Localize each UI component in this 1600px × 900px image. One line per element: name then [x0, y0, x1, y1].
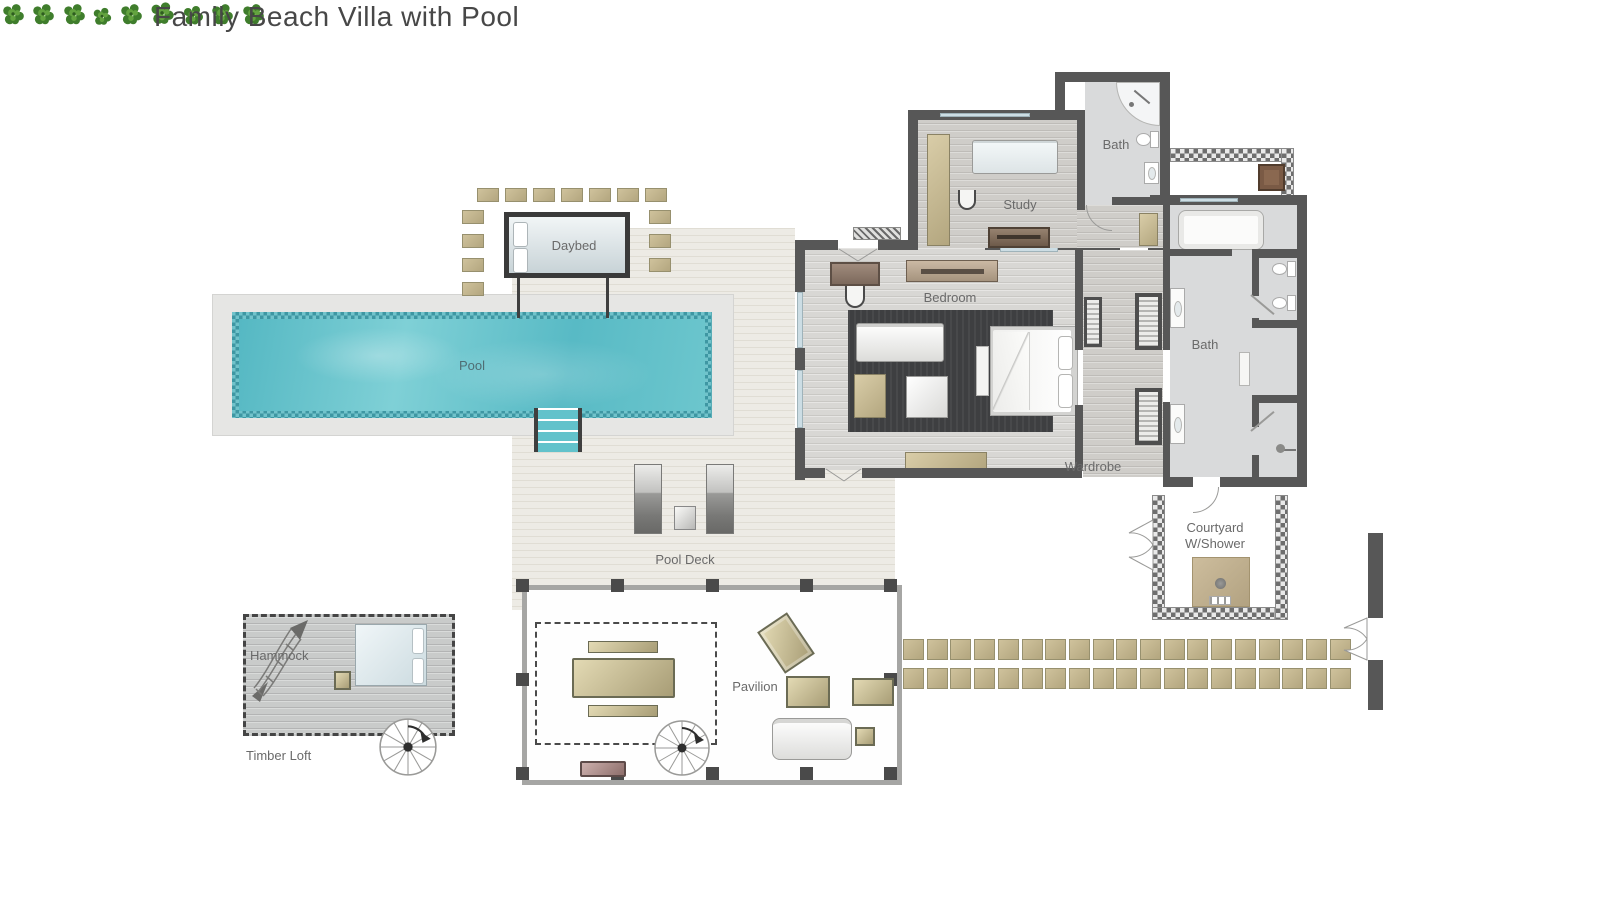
stepping-stone [1235, 668, 1256, 689]
door-swing-icon [1193, 487, 1219, 513]
planter-box [1258, 164, 1285, 191]
bath-wall [1163, 402, 1170, 477]
bedroom-glass-door [797, 292, 803, 348]
plant-icon [0, 2, 26, 28]
pavilion-sofa [772, 718, 852, 760]
stepping-stone [505, 188, 527, 202]
bidet-icon [1272, 297, 1287, 309]
study-label: Study [975, 197, 1065, 212]
stepping-stone [649, 258, 671, 272]
garden-trellis [1170, 148, 1294, 162]
pool-steps [534, 408, 582, 452]
bedroom-wall [795, 468, 825, 478]
toilet-tank [1287, 295, 1296, 311]
stepping-stone [927, 668, 948, 689]
pavilion-post [706, 579, 719, 592]
study-bath-wall [1055, 72, 1170, 82]
bed-pillow [1058, 374, 1073, 408]
stepping-stone [950, 668, 971, 689]
stepping-stone [1116, 668, 1137, 689]
courtyard-trellis [1275, 495, 1288, 620]
pavilion-post [884, 579, 897, 592]
shower-wall [1252, 455, 1259, 477]
study-wall [1077, 110, 1085, 210]
stepping-stone [1259, 668, 1280, 689]
bath-wall [1170, 249, 1232, 256]
closet [1135, 388, 1162, 445]
stepping-stone [649, 234, 671, 248]
stepping-stone [1022, 668, 1043, 689]
stepping-stone [1069, 639, 1090, 660]
stepping-stone [1282, 639, 1303, 660]
stepping-stone [533, 188, 555, 202]
stepping-stone [462, 210, 484, 224]
stepping-stone [1140, 668, 1161, 689]
plant-icon [91, 6, 113, 28]
stepping-stone [1045, 639, 1066, 660]
stepping-stone [1235, 639, 1256, 660]
stepping-stone [1211, 668, 1232, 689]
bedroom-wall [862, 468, 1082, 478]
stepping-stone [903, 639, 924, 660]
daybed-pillow [513, 222, 528, 247]
sun-lounger [634, 464, 662, 534]
dining-table [572, 658, 675, 698]
bathtub [1178, 210, 1264, 250]
stepping-stone [561, 188, 583, 202]
stepping-stone [1022, 639, 1043, 660]
courtyard-label: Courtyard [1165, 520, 1265, 535]
stepping-stone [1306, 639, 1327, 660]
bedroom-glass-door [797, 370, 803, 428]
stepping-stone [1306, 668, 1327, 689]
pavilion-post [884, 767, 897, 780]
stepping-stone [1282, 668, 1303, 689]
stepping-stone [998, 639, 1019, 660]
bed-pillow [1058, 336, 1073, 370]
pavilion-post [800, 767, 813, 780]
stepping-stone [950, 639, 971, 660]
toilet-tank [1287, 261, 1296, 277]
floor-pot-icon [845, 286, 865, 308]
sun-lounger [706, 464, 734, 534]
plant-icon [30, 2, 56, 28]
stepping-stone-path [903, 639, 1373, 699]
study-desk [988, 227, 1050, 248]
bath-shelf [1239, 352, 1250, 386]
stepping-stone [1259, 639, 1280, 660]
stepping-stone [1187, 639, 1208, 660]
closet [1135, 293, 1162, 350]
study-wall [908, 110, 918, 250]
sink-icon [1170, 288, 1185, 328]
study-window [940, 113, 1030, 117]
stepping-stone [1093, 668, 1114, 689]
stepping-stone [1211, 639, 1232, 660]
shower-head-icon [1276, 444, 1285, 453]
study-bath-wall [1160, 72, 1170, 205]
bath-window [1180, 198, 1238, 202]
stepping-stone [1069, 668, 1090, 689]
bath-wall [1163, 205, 1170, 350]
hammock-label: Hammock [250, 648, 309, 663]
french-doors-icon [1124, 518, 1154, 572]
pool-label: Pool [459, 358, 485, 373]
entrance-doors-icon [1338, 616, 1368, 662]
stepping-stone [1140, 639, 1161, 660]
loft-bed-pillow [412, 628, 424, 654]
courtyard-trellis [1152, 607, 1288, 620]
pavilion-post [611, 579, 624, 592]
bed-bench [976, 346, 989, 396]
stepping-stone [649, 210, 671, 224]
stepping-stone [477, 188, 499, 202]
stepping-stone [617, 188, 639, 202]
bath-wall [1297, 195, 1307, 487]
shower-wall [1252, 395, 1307, 403]
bifold-door-icon [825, 468, 862, 482]
main-bath-label: Bath [1172, 337, 1238, 352]
study-bath-label: Bath [1085, 137, 1147, 152]
loft-table [334, 671, 351, 690]
stepping-stone [462, 282, 484, 296]
wardrobe-label: Wardrobe [1053, 459, 1133, 474]
study-daybed [972, 140, 1058, 174]
daybed: Daybed [504, 212, 630, 278]
pavilion-post [800, 579, 813, 592]
sink-icon [1170, 404, 1185, 444]
entrance-wall [1368, 533, 1383, 618]
courtyard-label-2: W/Shower [1165, 536, 1265, 551]
bath-wall [1163, 477, 1193, 487]
floor-pot-icon [958, 190, 976, 210]
bedroom-wall [878, 240, 910, 250]
pavilion-post [516, 767, 529, 780]
bedroom-wall [1075, 248, 1083, 350]
loft-bed-pillow [412, 658, 424, 684]
wc-wall [1252, 320, 1307, 328]
plant-icon [61, 2, 87, 28]
page-title: Family Beach Villa with Pool [154, 1, 519, 33]
timber-loft-label: Timber Loft [246, 748, 311, 763]
toilet-icon [1272, 263, 1287, 275]
ottoman [855, 727, 875, 746]
pool-deck-label: Pool Deck [630, 552, 740, 567]
media-console [906, 260, 998, 282]
stepping-stone [645, 188, 667, 202]
shower-head-icon [1129, 102, 1134, 107]
dining-bench [588, 705, 658, 717]
stepping-stone [1330, 668, 1351, 689]
wc-wall [1252, 249, 1259, 296]
shower-arm-icon [1283, 449, 1296, 451]
spiral-staircase-icon [652, 718, 712, 778]
bedroom-armchair [854, 374, 886, 418]
daybed-label: Daybed [538, 238, 597, 253]
bedroom-label: Bedroom [905, 290, 995, 305]
pavilion-post [516, 579, 529, 592]
stepping-stone [974, 668, 995, 689]
console-cabinet [830, 262, 880, 286]
sink-icon [1144, 162, 1159, 184]
wc-wall [1252, 249, 1307, 258]
study-cabinet [927, 134, 950, 246]
floor-plan: Family Beach Villa with Pool Pool Daybed… [0, 0, 1600, 900]
pergola-louvers [853, 227, 901, 240]
spiral-staircase-icon [377, 716, 439, 778]
bifold-door-icon [838, 248, 878, 262]
stepping-stone [1093, 639, 1114, 660]
bedroom-wall [795, 240, 805, 292]
stepping-stone [1164, 639, 1185, 660]
daybed-pillow [513, 248, 528, 273]
entry-bench [1139, 213, 1158, 246]
armchair [852, 678, 894, 706]
pool-water: Pool [239, 319, 705, 411]
shower-mat [1209, 596, 1231, 605]
entrance-wall [1368, 660, 1383, 710]
bedroom-sofa [856, 323, 944, 362]
study-bath-wall [1055, 72, 1065, 114]
bedroom-wall [795, 348, 805, 370]
closet [1084, 297, 1102, 347]
stepping-stone [462, 234, 484, 248]
toilet-tank [1150, 131, 1159, 148]
stepping-stone [927, 639, 948, 660]
side-table [674, 506, 696, 530]
pavilion-bench [580, 761, 626, 777]
armchair [786, 676, 830, 708]
bed-duvet [993, 332, 1030, 410]
bedroom-chair [906, 376, 948, 418]
stepping-stone [903, 668, 924, 689]
stepping-stone [1164, 668, 1185, 689]
stepping-stone [1187, 668, 1208, 689]
dining-bench [588, 641, 658, 653]
plant-icon [118, 2, 144, 28]
stepping-stone [462, 258, 484, 272]
bath-wall [1220, 477, 1307, 487]
stepping-stone [998, 668, 1019, 689]
shower-head-icon [1215, 578, 1226, 589]
stepping-stone [1045, 668, 1066, 689]
stepping-stone [974, 639, 995, 660]
stepping-stone [589, 188, 611, 202]
pavilion-post [516, 673, 529, 686]
stepping-stone [1116, 639, 1137, 660]
